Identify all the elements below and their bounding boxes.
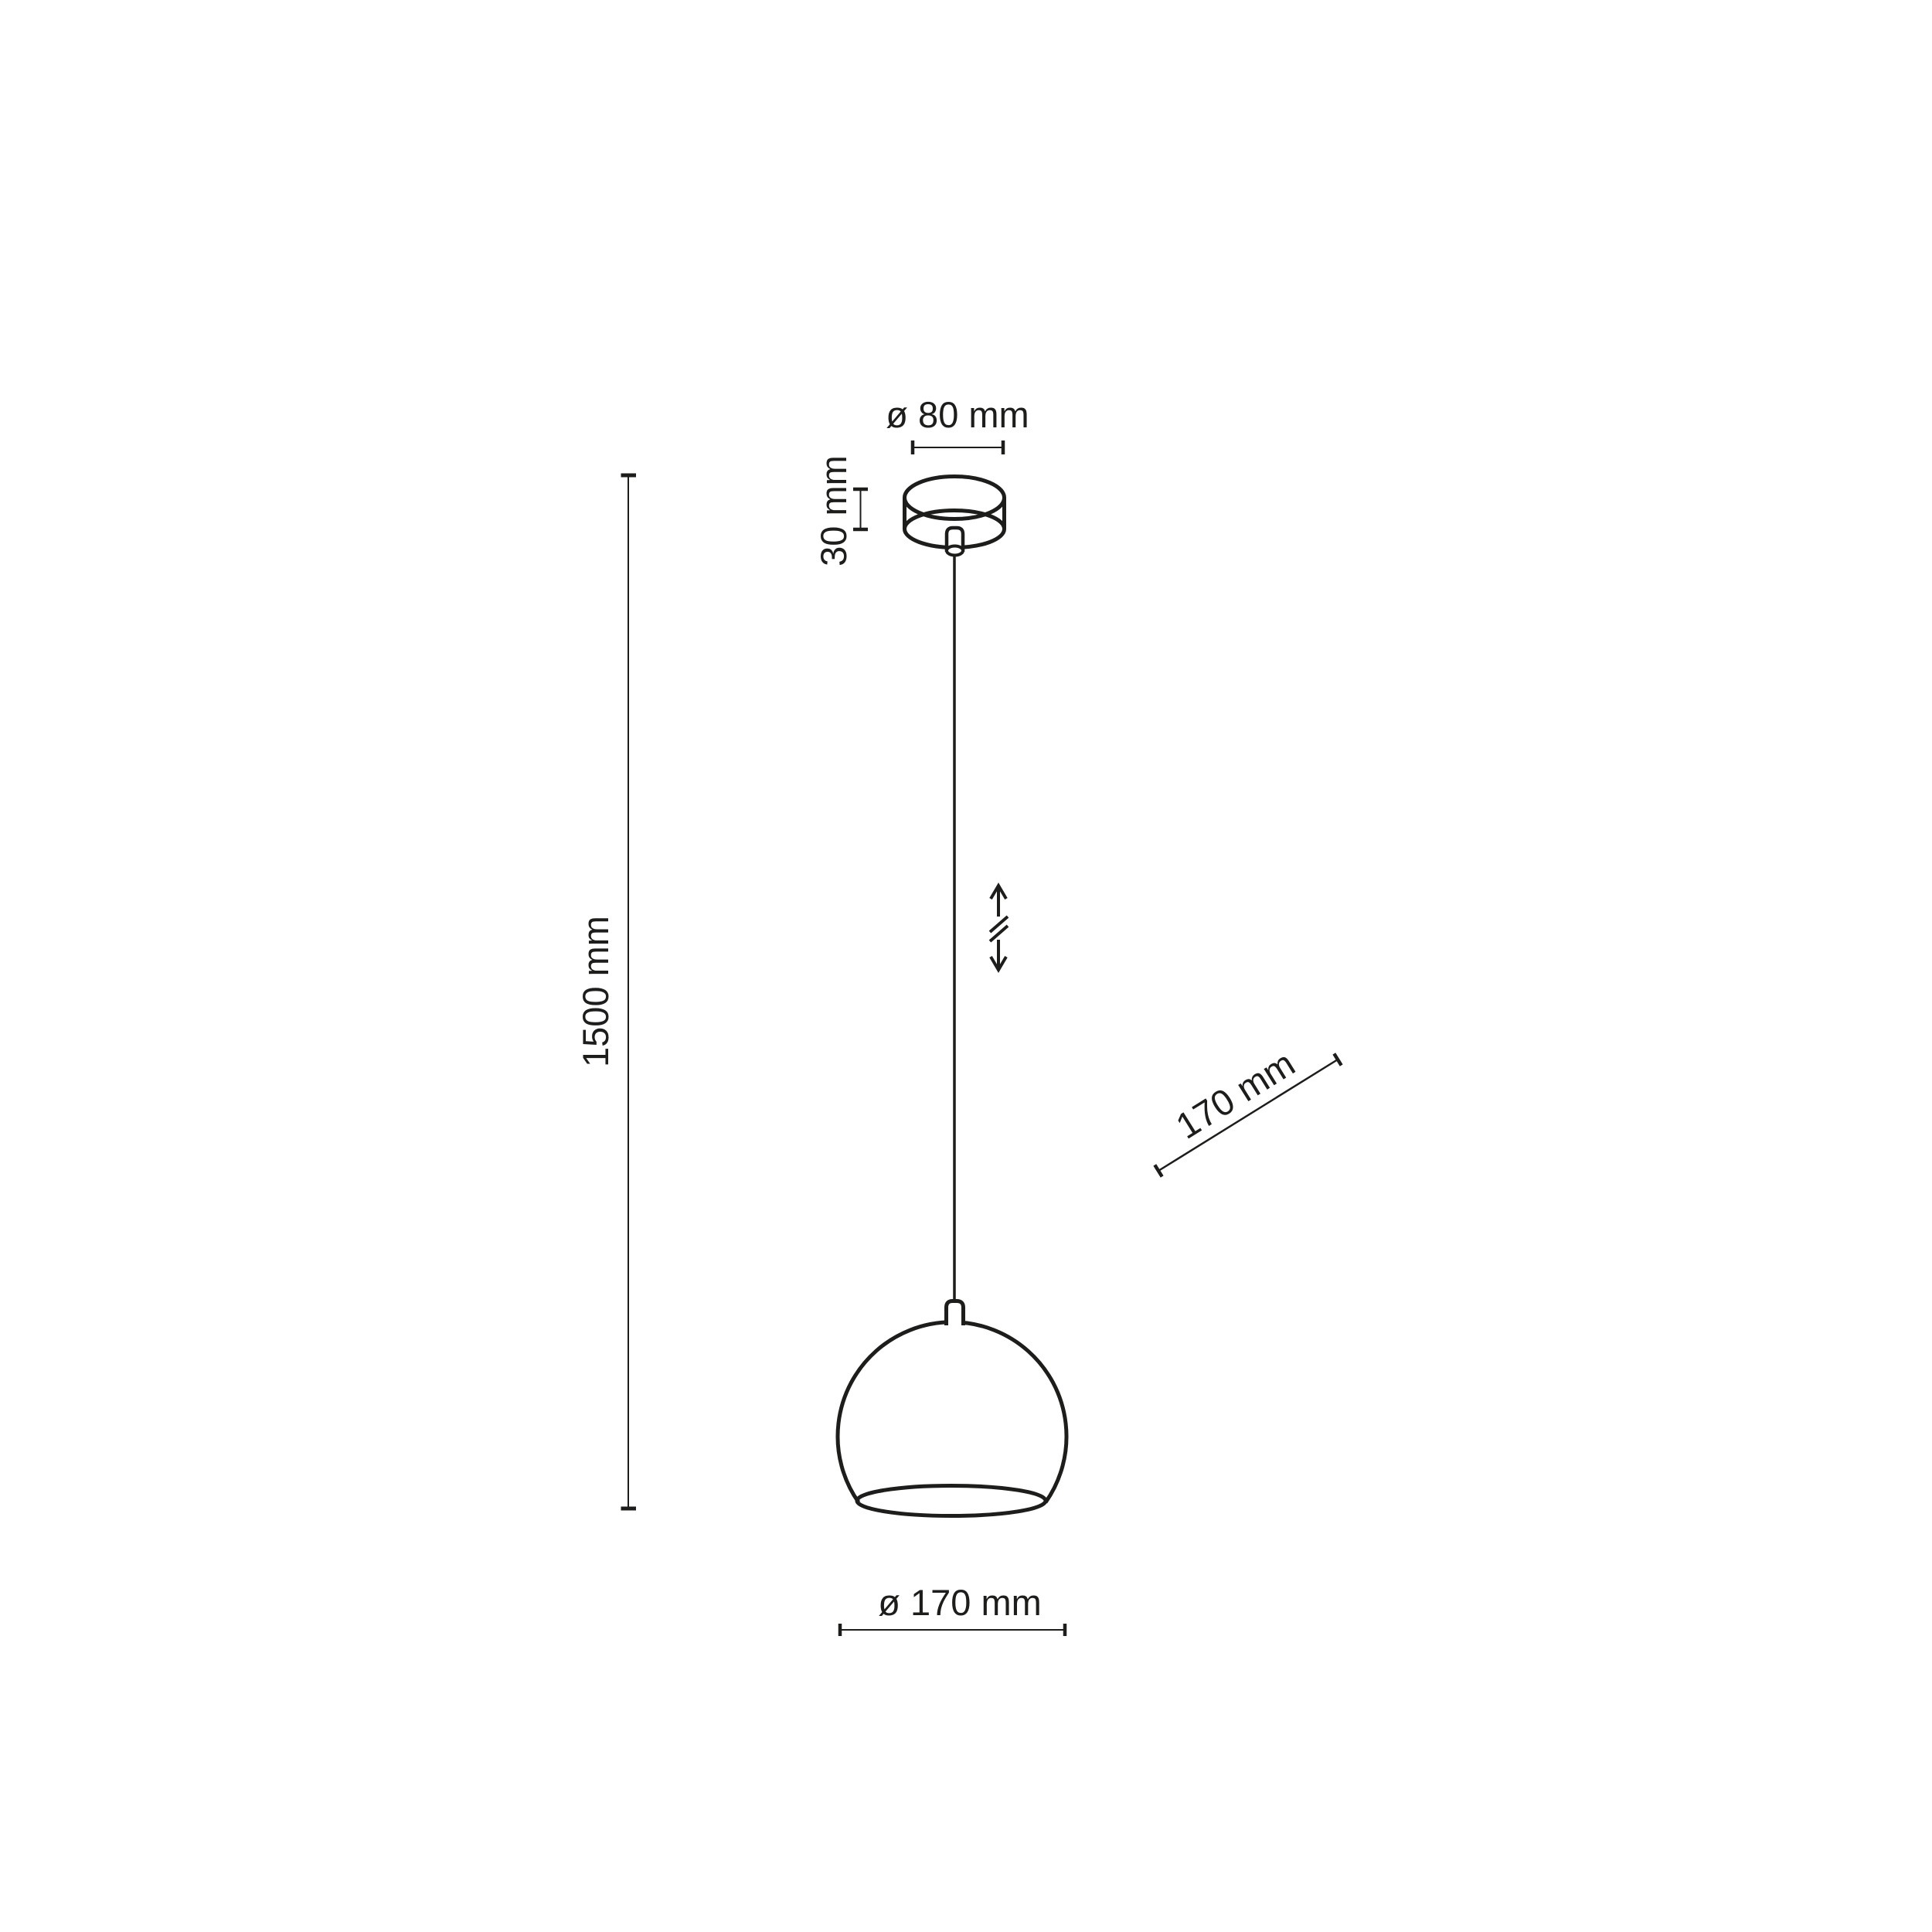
suspension-length-label: 1500 mm: [575, 916, 616, 1067]
shade-sphere-arc: [838, 1322, 1066, 1502]
shade-bottom-rim-ellipse: [857, 1486, 1046, 1516]
canopy-top-ellipse: [905, 477, 1005, 519]
shade-cable-grip: [947, 1301, 964, 1326]
shade-diameter-label: ø 170 mm: [878, 1582, 1042, 1623]
canopy-grip-bottom-ellipse: [947, 546, 963, 556]
canopy-cable-grip: [947, 528, 963, 556]
canopy-height-label: 30 mm: [813, 455, 854, 566]
drawing-root: ø 80 mm 30 mm 1500 mm 170 mm ø 170 mm: [575, 394, 1342, 1636]
dim-shade-diameter: [840, 1624, 1065, 1636]
dim-canopy-height: [853, 489, 868, 529]
dim-shade-diagonal-tick-left: [1155, 1165, 1162, 1176]
shade-outline: [838, 1301, 1066, 1516]
canopy-diameter-label: ø 80 mm: [886, 394, 1029, 435]
height-adjustment-icon: [990, 886, 1008, 970]
dim-suspension-length: [621, 475, 637, 1509]
dim-shade-diagonal-tick-right: [1334, 1053, 1341, 1065]
dim-canopy-diameter: [913, 440, 1003, 454]
labels: ø 80 mm 30 mm 1500 mm 170 mm ø 170 mm: [575, 394, 1301, 1623]
pendant-lamp-dimension-drawing: ø 80 mm 30 mm 1500 mm 170 mm ø 170 mm: [0, 0, 1932, 1932]
